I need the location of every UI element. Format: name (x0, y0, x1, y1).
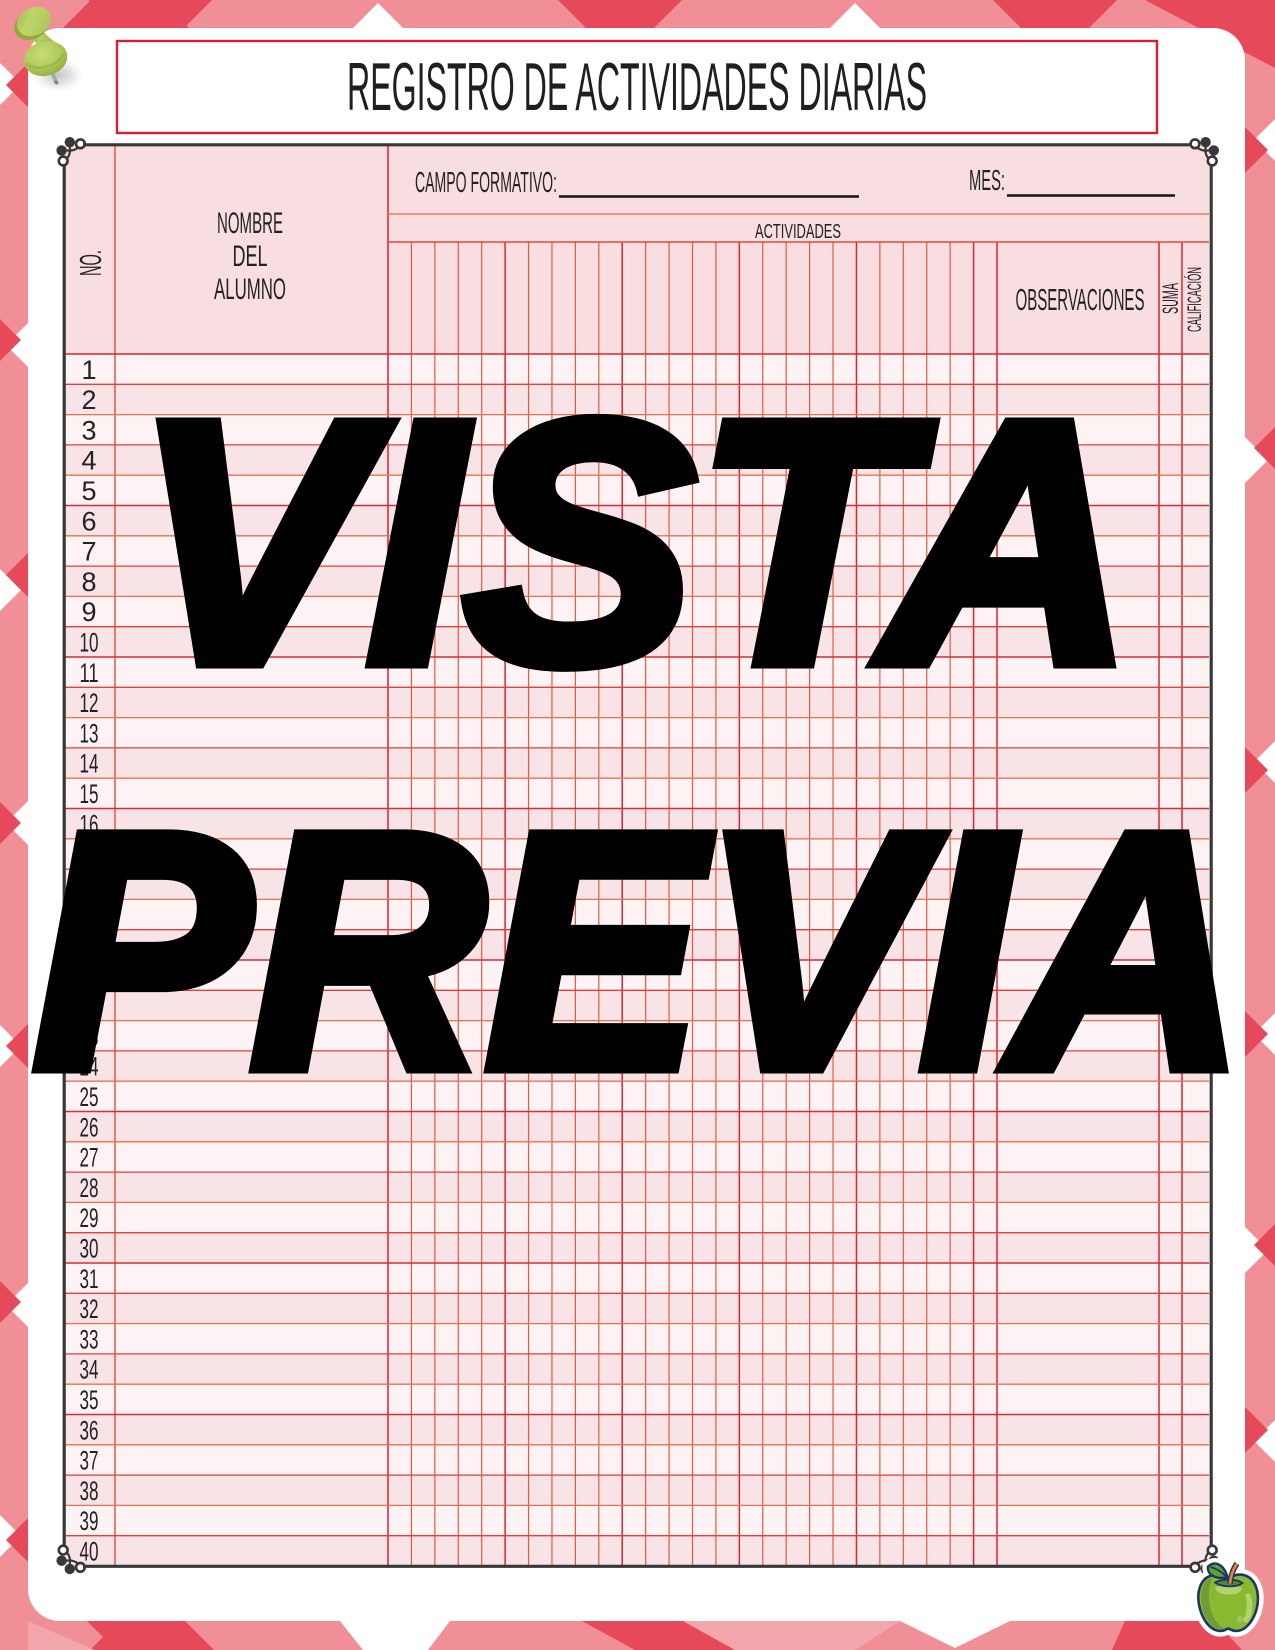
svg-text:38: 38 (80, 1476, 99, 1506)
svg-text:SUMA: SUMA (1158, 283, 1183, 314)
svg-text:7: 7 (81, 537, 96, 567)
svg-text:ACTIVIDADES: ACTIVIDADES (755, 220, 841, 243)
svg-text:30: 30 (80, 1234, 99, 1264)
svg-text:36: 36 (80, 1415, 99, 1445)
svg-text:2: 2 (81, 385, 96, 415)
svg-text:33: 33 (80, 1324, 99, 1354)
svg-text:37: 37 (80, 1446, 99, 1476)
svg-text:DEL: DEL (233, 240, 268, 273)
svg-text:REGISTRO DE ACTIVIDADES DIARIA: REGISTRO DE ACTIVIDADES DIARIAS (347, 49, 927, 125)
svg-text:32: 32 (80, 1294, 99, 1324)
svg-text:CALIFICACIÓN: CALIFICACIÓN (1184, 267, 1206, 332)
svg-text:31: 31 (80, 1264, 99, 1294)
svg-text:3: 3 (81, 415, 96, 445)
svg-text:35: 35 (80, 1385, 99, 1415)
svg-text:39: 39 (80, 1506, 99, 1536)
svg-text:9: 9 (81, 597, 96, 627)
svg-text:CAMPO FORMATIVO:: CAMPO FORMATIVO: (415, 167, 557, 199)
svg-text:6: 6 (81, 506, 96, 536)
svg-text:11: 11 (80, 658, 99, 688)
svg-text:27: 27 (80, 1143, 99, 1173)
svg-text:34: 34 (80, 1355, 99, 1385)
svg-text:VISTA: VISTA (134, 350, 1134, 736)
svg-text:PREVIA: PREVIA (33, 764, 1245, 1139)
svg-text:NO.: NO. (73, 250, 108, 276)
svg-text:28: 28 (80, 1173, 99, 1203)
svg-text:ALUMNO: ALUMNO (214, 273, 286, 306)
svg-text:1: 1 (81, 355, 96, 385)
svg-text:MES:: MES: (969, 165, 1005, 197)
svg-text:10: 10 (80, 628, 99, 658)
svg-text:4: 4 (81, 446, 96, 476)
svg-text:13: 13 (80, 718, 99, 748)
svg-text:8: 8 (81, 567, 96, 597)
svg-text:29: 29 (80, 1203, 99, 1233)
svg-text:OBSERVACIONES: OBSERVACIONES (1016, 282, 1145, 317)
svg-text:NOMBRE: NOMBRE (217, 207, 283, 240)
svg-text:12: 12 (80, 688, 99, 718)
svg-text:5: 5 (81, 476, 96, 506)
